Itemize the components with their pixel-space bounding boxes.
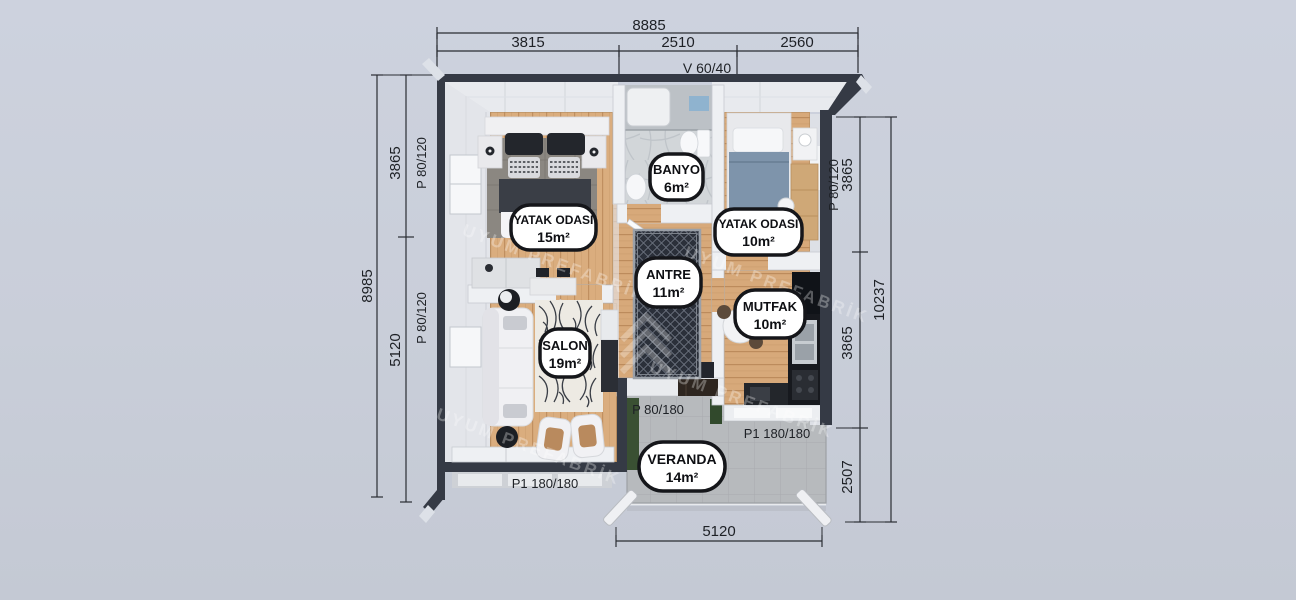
svg-text:YATAK ODASI: YATAK ODASI [514,213,594,227]
svg-text:YATAK ODASI: YATAK ODASI [719,217,799,231]
svg-text:10m²: 10m² [754,316,787,332]
svg-text:BANYO: BANYO [653,162,700,177]
svg-text:P 80/120: P 80/120 [826,159,841,211]
svg-text:3815: 3815 [511,34,544,51]
svg-text:15m²: 15m² [537,229,570,245]
svg-text:V 60/40: V 60/40 [683,60,731,76]
svg-text:P1 180/180: P1 180/180 [744,426,811,441]
svg-text:10237: 10237 [871,279,888,321]
svg-text:VERANDA: VERANDA [647,451,716,467]
svg-text:14m²: 14m² [666,469,699,485]
svg-text:6m²: 6m² [664,179,689,195]
svg-text:8885: 8885 [632,17,665,34]
svg-text:2507: 2507 [839,460,856,493]
svg-text:P 80/120: P 80/120 [414,292,429,344]
svg-text:2560: 2560 [780,34,813,51]
svg-text:19m²: 19m² [549,355,582,371]
svg-text:5120: 5120 [387,333,404,366]
svg-text:10m²: 10m² [742,233,775,249]
svg-text:11m²: 11m² [653,284,685,300]
svg-text:8985: 8985 [359,269,376,302]
svg-text:SALON: SALON [542,338,588,353]
svg-text:P1 180/180: P1 180/180 [512,476,579,491]
svg-text:ANTRE: ANTRE [646,267,691,282]
svg-text:P 80/120: P 80/120 [414,137,429,189]
svg-text:3865: 3865 [839,158,856,191]
svg-text:2510: 2510 [661,34,694,51]
svg-text:MUTFAK: MUTFAK [743,299,798,314]
svg-text:P 80/180: P 80/180 [632,402,684,417]
svg-text:5120: 5120 [702,523,735,540]
svg-text:3865: 3865 [387,146,404,179]
svg-text:3865: 3865 [839,326,856,359]
